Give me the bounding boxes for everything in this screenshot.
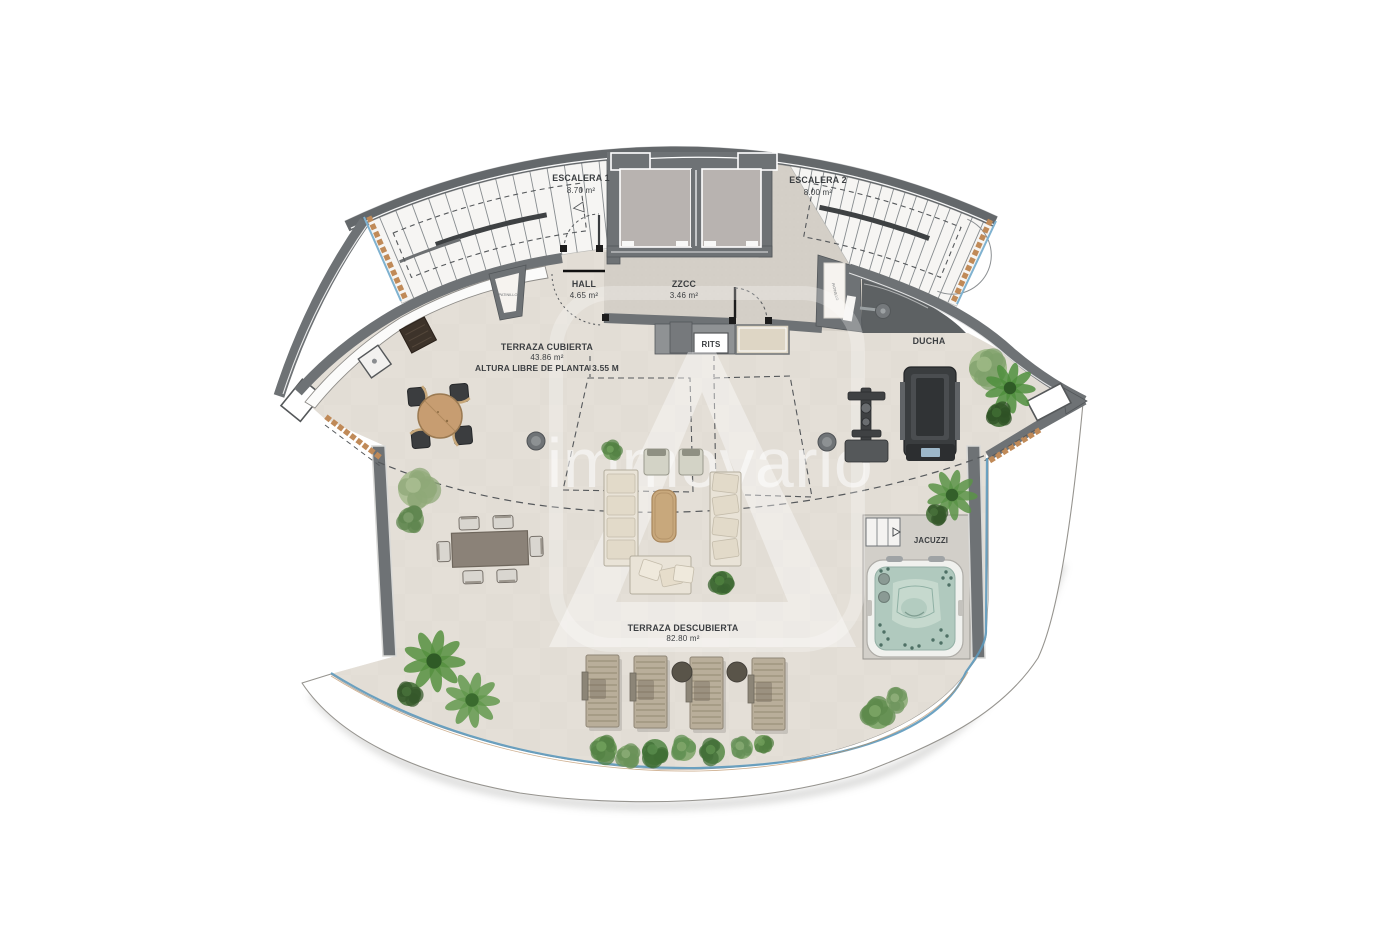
svg-text:PATINILLO: PATINILLO — [499, 293, 518, 297]
svg-text:43.86 m²: 43.86 m² — [530, 353, 563, 362]
svg-text:DUCHA: DUCHA — [913, 336, 946, 346]
svg-text:TERRAZA DESCUBIERTA: TERRAZA DESCUBIERTA — [628, 623, 739, 633]
svg-text:HALL: HALL — [572, 279, 597, 289]
svg-text:3.46 m²: 3.46 m² — [670, 291, 699, 300]
svg-text:TERRAZA CUBIERTA: TERRAZA CUBIERTA — [501, 342, 594, 352]
svg-text:JACUZZI: JACUZZI — [914, 536, 948, 545]
svg-text:8.00 m²: 8.00 m² — [804, 188, 833, 197]
svg-text:ZZCC: ZZCC — [672, 279, 697, 289]
svg-text:RITS: RITS — [701, 340, 720, 349]
svg-text:ALTURA LIBRE DE PLANTA 3.55 M: ALTURA LIBRE DE PLANTA 3.55 M — [475, 363, 619, 373]
svg-text:82.80 m²: 82.80 m² — [666, 634, 699, 643]
svg-text:4.65 m²: 4.65 m² — [570, 291, 599, 300]
svg-text:ESCALERA 1: ESCALERA 1 — [552, 173, 609, 183]
svg-text:8.70 m²: 8.70 m² — [567, 186, 596, 195]
svg-text:ESCALERA 2: ESCALERA 2 — [789, 175, 846, 185]
